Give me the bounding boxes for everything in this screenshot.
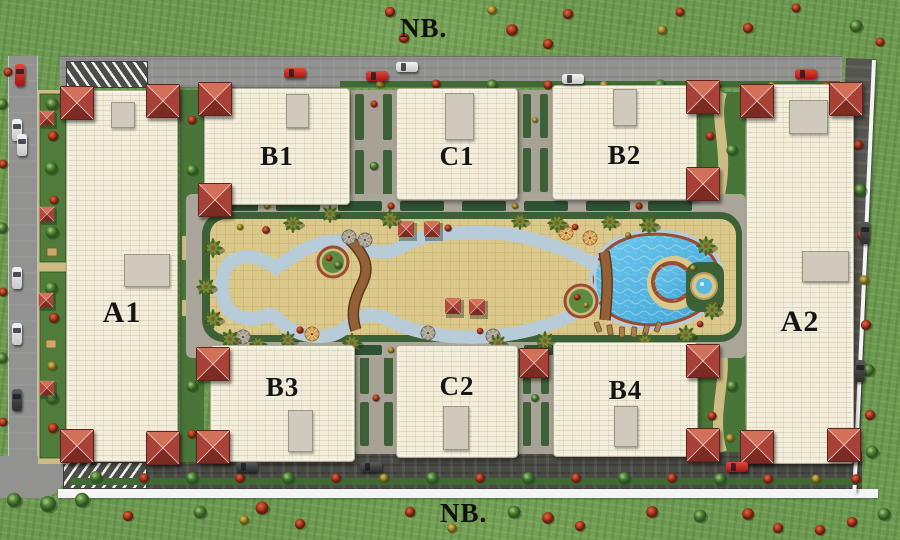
car xyxy=(795,69,817,79)
corner-roof xyxy=(198,183,232,217)
rooftop-structure xyxy=(789,100,827,134)
car xyxy=(360,462,382,472)
site-plan-canvas: A1 A2 B1 C1 B2 B3 C2 B4 xyxy=(0,0,900,540)
south-road-trees xyxy=(70,471,862,486)
car xyxy=(12,267,22,289)
pool-island xyxy=(565,285,597,317)
building-a2-label: A2 xyxy=(781,305,820,339)
corner-roof xyxy=(60,86,94,120)
building-b4-label: B4 xyxy=(609,375,643,406)
car xyxy=(396,62,418,72)
east-road-trees xyxy=(853,140,880,460)
rooftop-structure xyxy=(443,406,469,450)
car xyxy=(366,71,388,81)
car xyxy=(17,134,27,156)
car xyxy=(12,323,22,345)
pool-island xyxy=(318,247,348,277)
building-b3-label: B3 xyxy=(266,372,300,403)
corner-roof xyxy=(686,428,720,462)
building-c1-label: C1 xyxy=(440,141,475,172)
north-boundary-label: NB. xyxy=(400,13,447,44)
building-b4[interactable]: B4 xyxy=(553,342,698,457)
corner-roof xyxy=(196,430,230,464)
corner-roof xyxy=(146,84,180,118)
corner-roof xyxy=(686,167,720,201)
corner-roof xyxy=(829,82,863,116)
rooftop-structure xyxy=(124,254,170,287)
corner-roof xyxy=(686,80,720,114)
building-b2-label: B2 xyxy=(608,140,642,171)
car xyxy=(859,222,870,244)
corner-roof xyxy=(196,347,230,381)
building-a1[interactable]: A1 xyxy=(66,90,178,462)
corner-roof xyxy=(740,84,774,118)
car xyxy=(12,389,22,411)
rooftop-structure xyxy=(802,251,849,281)
car xyxy=(854,360,865,382)
corner-roof xyxy=(146,431,180,465)
corner-roof xyxy=(740,430,774,464)
corner-roof xyxy=(60,429,94,463)
rooftop-structure xyxy=(445,93,474,139)
rooftop-structure xyxy=(613,89,637,125)
rooftop-structure xyxy=(286,94,309,129)
car xyxy=(726,462,748,472)
corner-roof xyxy=(198,82,232,116)
building-c1[interactable]: C1 xyxy=(396,88,518,200)
car xyxy=(236,462,258,472)
car xyxy=(562,74,584,84)
building-c2[interactable]: C2 xyxy=(396,345,518,458)
corner-roof xyxy=(519,348,549,378)
car xyxy=(284,68,306,78)
corner-roof xyxy=(686,344,720,378)
building-b2[interactable]: B2 xyxy=(552,85,697,200)
rooftop-structure xyxy=(111,102,135,128)
building-b3[interactable]: B3 xyxy=(210,345,355,462)
building-b1-label: B1 xyxy=(260,141,294,172)
car xyxy=(15,64,25,86)
building-c2-label: C2 xyxy=(440,371,475,402)
rooftop-structure xyxy=(614,406,638,447)
corner-roof xyxy=(827,428,861,462)
courtyard xyxy=(186,194,746,358)
south-boundary-label: NB. xyxy=(440,498,487,529)
rooftop-structure xyxy=(288,410,312,451)
building-a1-label: A1 xyxy=(103,296,142,330)
building-a2[interactable]: A2 xyxy=(746,84,854,464)
west-garden-strip xyxy=(38,90,68,464)
